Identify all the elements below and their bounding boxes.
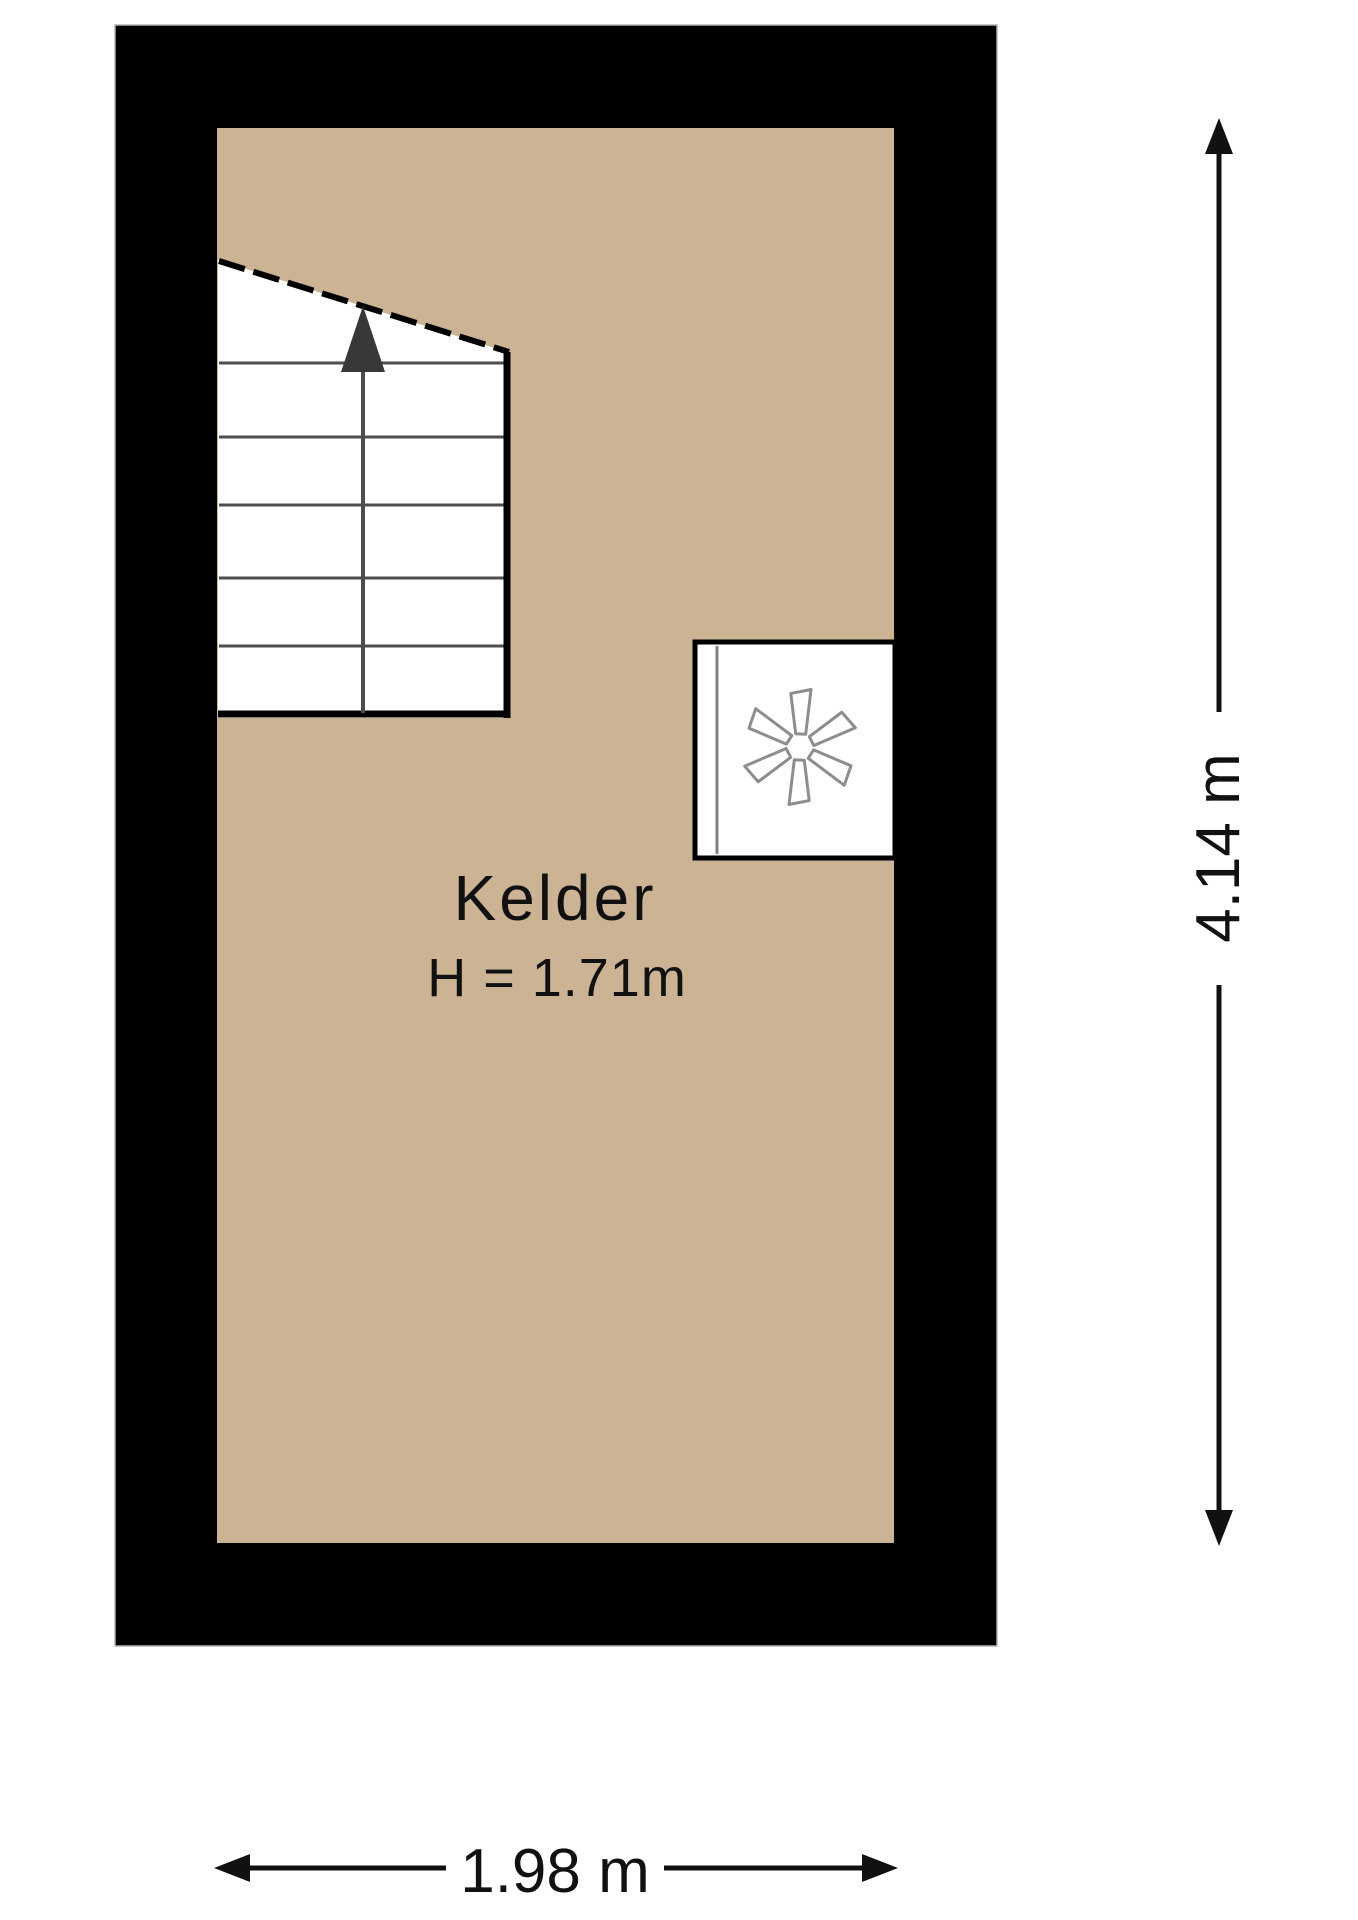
dimension-arrow-down-icon xyxy=(1205,1510,1233,1546)
floorplan-canvas: Kelder H = 1.71m 4.14 m 1.98 m xyxy=(0,0,1358,1920)
dimension-horizontal-label: 1.98 m xyxy=(355,1841,755,1903)
dimension-arrow-right-icon xyxy=(862,1854,898,1882)
dimension-vertical-label: 4.14 m xyxy=(1188,753,1250,943)
fan-unit-box xyxy=(695,642,895,858)
fan-unit xyxy=(695,642,895,858)
room-name-label: Kelder xyxy=(305,866,805,930)
dimension-arrow-up-icon xyxy=(1205,118,1233,154)
room-ceiling-height-label: H = 1.71m xyxy=(307,951,807,1005)
dimension-arrow-left-icon xyxy=(214,1854,250,1882)
